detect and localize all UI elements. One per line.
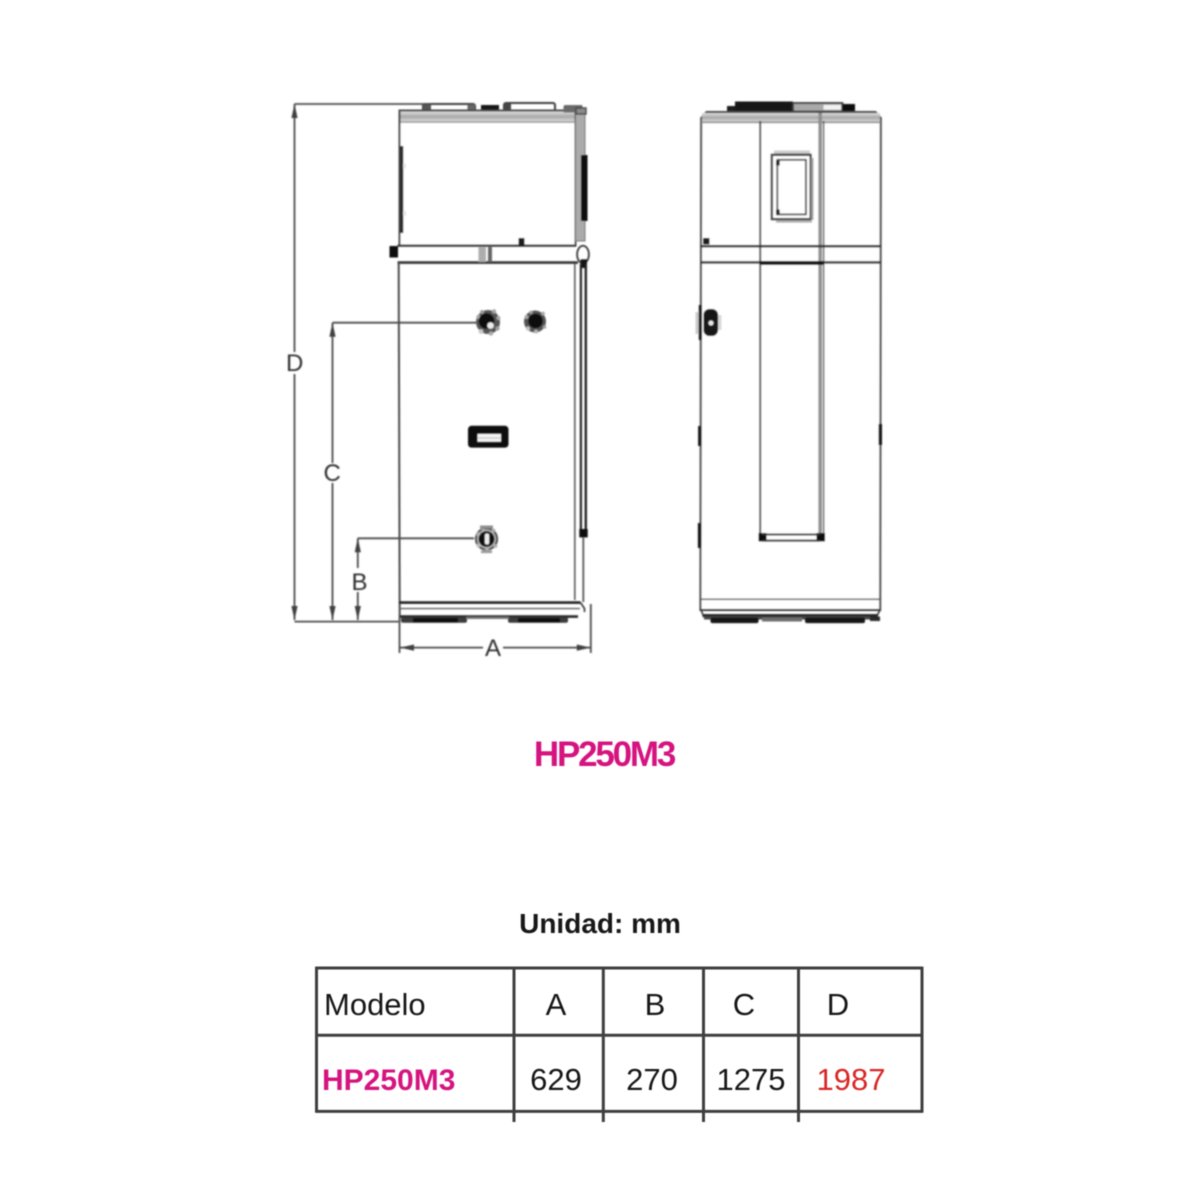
svg-text:Modelo: Modelo xyxy=(324,987,426,1022)
svg-text:270: 270 xyxy=(626,1062,678,1097)
svg-text:D: D xyxy=(286,350,303,377)
svg-text:A: A xyxy=(546,987,567,1022)
svg-text:D: D xyxy=(827,987,849,1022)
svg-text:1987: 1987 xyxy=(817,1062,886,1097)
svg-text:A: A xyxy=(485,635,501,662)
svg-text:1275: 1275 xyxy=(717,1062,786,1097)
svg-text:HP250M3: HP250M3 xyxy=(534,735,676,774)
svg-text:B: B xyxy=(352,569,368,596)
svg-text:629: 629 xyxy=(530,1062,582,1097)
svg-text:HP250M3: HP250M3 xyxy=(322,1064,455,1097)
svg-text:Unidad: mm: Unidad: mm xyxy=(519,908,681,939)
svg-text:C: C xyxy=(324,460,341,487)
svg-text:C: C xyxy=(733,987,755,1022)
svg-text:B: B xyxy=(645,987,666,1022)
